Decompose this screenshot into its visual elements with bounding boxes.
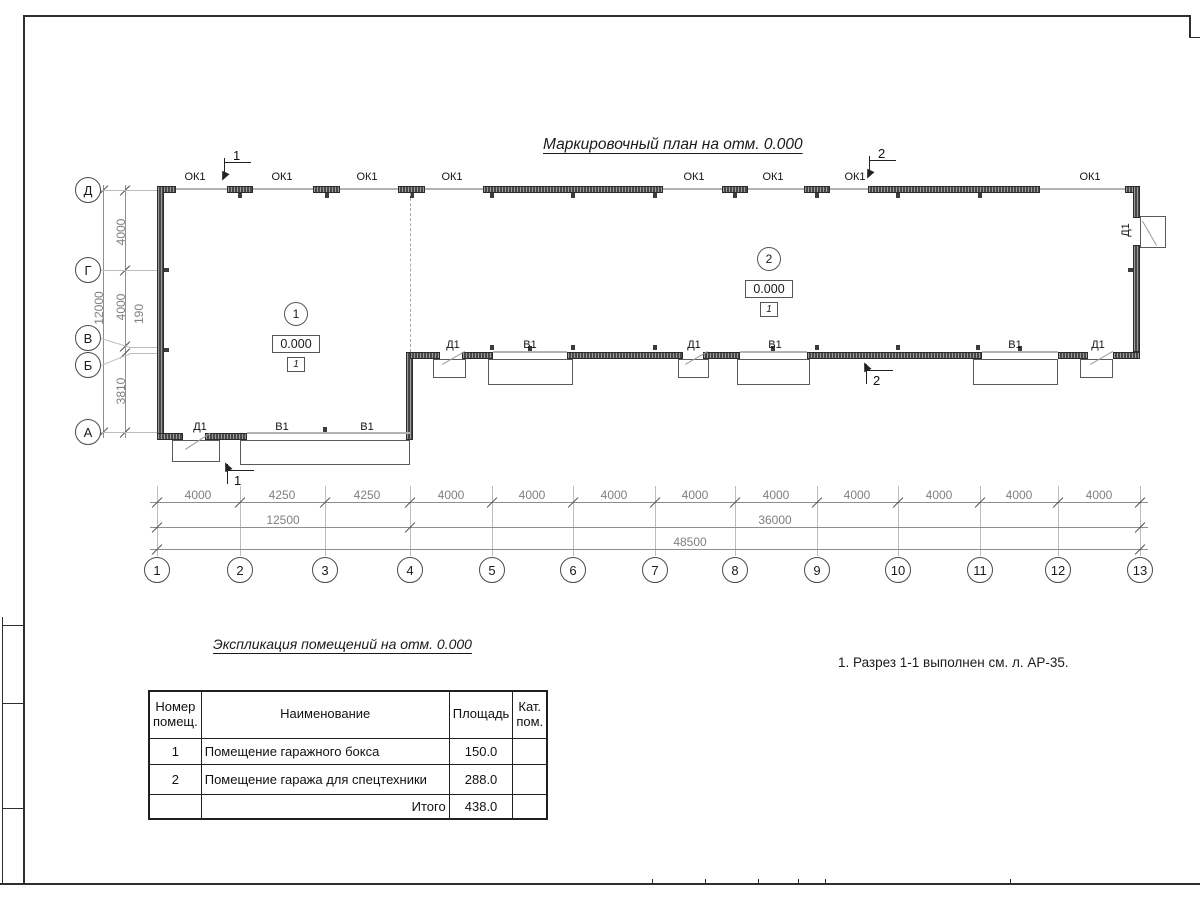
axis-bubble: 4 <box>397 557 423 583</box>
gate-apron <box>737 359 810 385</box>
dimension-label: 4000 <box>994 488 1044 502</box>
room-number-marker: 1 <box>284 302 308 326</box>
axis-extension-line <box>898 486 899 556</box>
axis-bubble: Б <box>75 352 101 378</box>
frame-nub <box>798 879 799 883</box>
axis-leader <box>100 190 157 191</box>
dimension-label: 190 <box>132 294 146 334</box>
dimension-label: 4250 <box>342 488 392 502</box>
gate-apron <box>973 359 1058 385</box>
dimension-label: 4000 <box>1074 488 1124 502</box>
door-label: Д1 <box>436 339 470 351</box>
pilaster-tick <box>815 345 819 350</box>
wall-segment <box>703 352 740 359</box>
pilaster-tick <box>896 345 900 350</box>
floor-type-mark: 1 <box>287 357 305 372</box>
pilaster-tick <box>1128 268 1133 272</box>
axis-extension-line <box>817 486 818 556</box>
pilaster-tick <box>653 345 657 350</box>
section-label: 1 <box>234 473 241 488</box>
dimension-label: 4000 <box>589 488 639 502</box>
wall-segment <box>205 433 247 440</box>
dimension-label: 4000 <box>426 488 476 502</box>
axis-bubble: 13 <box>1127 557 1153 583</box>
axis-bubble: 7 <box>642 557 668 583</box>
window-label: ОК1 <box>1073 171 1107 183</box>
axis-extension-line <box>980 486 981 556</box>
axis-bubble: А <box>75 419 101 445</box>
section-arrow-icon <box>218 171 229 183</box>
dimension-label: 4000 <box>670 488 720 502</box>
entrance-porch <box>1140 216 1166 248</box>
entrance-porch <box>172 440 220 462</box>
section-line <box>866 370 893 371</box>
axis-bubble: 1 <box>144 557 170 583</box>
pilaster-tick <box>238 193 242 198</box>
axis-extension-line <box>492 486 493 556</box>
pilaster-tick <box>164 348 169 352</box>
dimension-label: 4000 <box>507 488 557 502</box>
section-line <box>227 470 254 471</box>
gate-sill-line <box>493 351 567 353</box>
section-label: 1 <box>233 148 240 163</box>
dimension-label: 4250 <box>257 488 307 502</box>
wall-segment <box>1133 186 1140 218</box>
partition-dashed-line <box>410 193 411 352</box>
entrance-porch <box>433 359 466 378</box>
dimension-label: 4000 <box>114 277 128 337</box>
entrance-porch <box>678 359 709 378</box>
axis-extension-line <box>410 486 411 556</box>
axis-leader <box>100 432 157 433</box>
axis-bubble: 9 <box>804 557 830 583</box>
gate-tick <box>323 427 327 432</box>
wall-segment <box>398 186 425 193</box>
wall-segment <box>807 352 982 359</box>
floor-type-mark: 1 <box>760 302 778 317</box>
window-label: ОК1 <box>677 171 711 183</box>
frame-nub <box>1010 879 1011 883</box>
gate-label: В1 <box>998 339 1032 351</box>
axis-bubble: 2 <box>227 557 253 583</box>
door-label: Д1 <box>1081 339 1115 351</box>
pilaster-tick <box>571 345 575 350</box>
axis-leader <box>100 270 157 271</box>
wall-segment <box>567 352 683 359</box>
axis-extension-line <box>157 486 158 556</box>
wall-segment <box>227 186 253 193</box>
window-label: ОК1 <box>178 171 212 183</box>
floor-plan: 1234567891011121340004250425040004000400… <box>0 0 1200 900</box>
dimension-label: 4000 <box>751 488 801 502</box>
wall-segment <box>157 186 164 440</box>
axis-extension-line <box>573 486 574 556</box>
pilaster-tick <box>653 193 657 198</box>
window-label: ОК1 <box>265 171 299 183</box>
window-label: ОК1 <box>435 171 469 183</box>
axis-bubble: 5 <box>479 557 505 583</box>
wall-segment <box>410 352 440 359</box>
frame-nub <box>705 879 706 883</box>
wall-segment <box>157 433 183 440</box>
frame-nub <box>758 879 759 883</box>
pilaster-tick <box>490 345 494 350</box>
axis-extension-line <box>735 486 736 556</box>
wall-segment <box>1133 245 1140 352</box>
door-label: Д1 <box>1120 213 1132 247</box>
axis-extension-line <box>325 486 326 556</box>
gate-sill-line <box>982 351 1058 353</box>
axis-bubble: Д <box>75 177 101 203</box>
frame-nub <box>652 879 653 883</box>
axis-extension-line <box>1140 486 1141 556</box>
room-number-marker: 2 <box>757 247 781 271</box>
axis-bubble: Г <box>75 257 101 283</box>
axis-bubble: В <box>75 325 101 351</box>
entrance-porch <box>1080 359 1113 378</box>
gate-label: В1 <box>513 339 547 351</box>
gate-apron <box>240 440 410 465</box>
wall-segment <box>483 186 663 193</box>
wall-segment <box>313 186 340 193</box>
wall-segment <box>1058 352 1088 359</box>
dimension-total: 48500 <box>660 535 720 549</box>
pilaster-tick <box>815 193 819 198</box>
elevation-mark: 0.000 <box>745 280 793 298</box>
axis-bubble: 3 <box>312 557 338 583</box>
gate-label: В1 <box>758 339 792 351</box>
door-label: Д1 <box>677 339 711 351</box>
dimension-label: 4000 <box>173 488 223 502</box>
axis-bubble: 6 <box>560 557 586 583</box>
window-label: ОК1 <box>350 171 384 183</box>
gate-label: В1 <box>265 421 299 433</box>
section-label: 2 <box>878 146 885 161</box>
dimension-line <box>150 527 1148 528</box>
axis-extension-line <box>240 486 241 556</box>
dimension-line <box>150 549 1148 550</box>
pilaster-tick <box>978 193 982 198</box>
wall-segment <box>406 352 413 440</box>
axis-bubble: 11 <box>967 557 993 583</box>
gate-apron <box>488 359 573 385</box>
elevation-mark: 0.000 <box>272 335 320 353</box>
pilaster-tick <box>733 193 737 198</box>
wall-segment <box>722 186 748 193</box>
dimension-label: 3810 <box>114 361 128 421</box>
dimension-subtotal: 36000 <box>745 513 805 527</box>
axis-bubble: 12 <box>1045 557 1071 583</box>
window-label: ОК1 <box>756 171 790 183</box>
axis-extension-line <box>1058 486 1059 556</box>
gate-label: В1 <box>350 421 384 433</box>
pilaster-tick <box>490 193 494 198</box>
pilaster-tick <box>325 193 329 198</box>
axis-bubble: 10 <box>885 557 911 583</box>
wall-segment <box>1113 352 1140 359</box>
section-label: 2 <box>873 373 880 388</box>
pilaster-tick <box>164 268 169 272</box>
dimension-label: 4000 <box>832 488 882 502</box>
dimension-label: 4000 <box>914 488 964 502</box>
wall-segment <box>868 186 1040 193</box>
axis-bubble: 8 <box>722 557 748 583</box>
wall-segment <box>462 352 493 359</box>
wall-segment <box>804 186 830 193</box>
dimension-line <box>150 502 1148 503</box>
pilaster-tick <box>571 193 575 198</box>
axis-extension-line <box>655 486 656 556</box>
door-label: Д1 <box>183 421 217 433</box>
dimension-label: 4000 <box>114 202 128 262</box>
pilaster-tick <box>976 345 980 350</box>
frame-nub <box>825 879 826 883</box>
pilaster-tick <box>896 193 900 198</box>
dimension-subtotal: 12500 <box>253 513 313 527</box>
drawing-sheet: Маркировочный план на отм. 0.000 Эксплик… <box>0 0 1200 900</box>
axis-leader <box>129 353 157 354</box>
gate-sill-line <box>740 351 807 353</box>
axis-leader <box>129 347 157 348</box>
